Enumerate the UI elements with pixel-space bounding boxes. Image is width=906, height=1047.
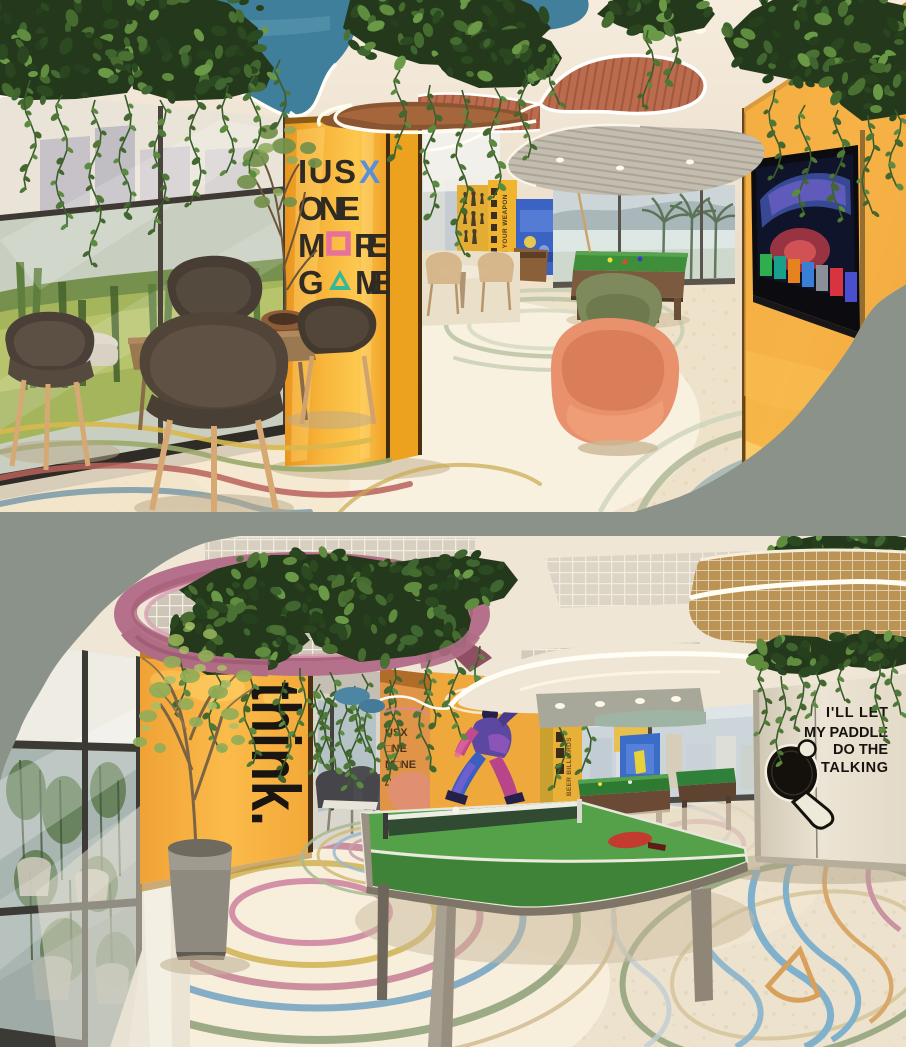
svg-text:DO THE: DO THE xyxy=(833,742,888,758)
svg-text:TALKING: TALKING xyxy=(821,760,888,776)
svg-text:ME: ME xyxy=(355,264,391,301)
svg-text:IUS: IUS xyxy=(298,153,356,190)
svg-text:BEER BILLIARDS: BEER BILLIARDS xyxy=(566,737,573,796)
svg-text:RE: RE xyxy=(354,227,388,264)
svg-text:G: G xyxy=(298,264,324,301)
svg-text:MY PADDLE: MY PADDLE xyxy=(804,725,888,741)
svg-text:X: X xyxy=(359,154,381,190)
svg-text:M: M xyxy=(298,227,326,264)
svg-text:ONE: ONE xyxy=(298,190,360,227)
svg-text:I'LL LET: I'LL LET xyxy=(826,705,888,721)
